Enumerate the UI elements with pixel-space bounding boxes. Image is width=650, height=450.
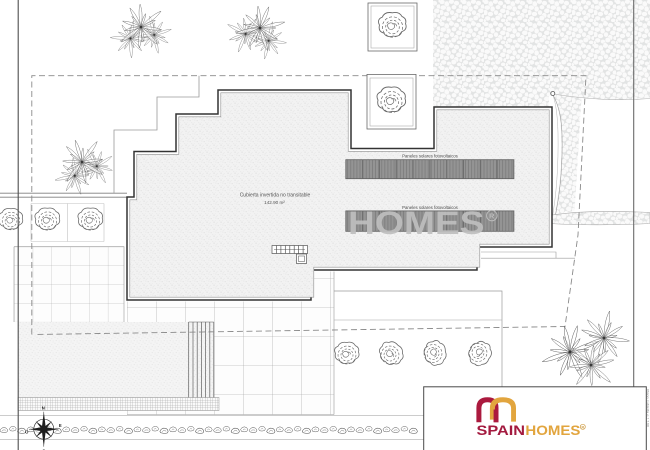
svg-text:142.90 m²: 142.90 m² xyxy=(264,200,285,205)
svg-text:R: R xyxy=(489,212,495,221)
svg-text:E: E xyxy=(59,423,62,428)
svg-text:Plano cubierta e.1:100: Plano cubierta e.1:100 xyxy=(646,389,650,427)
svg-text:SPAIN: SPAIN xyxy=(477,422,526,438)
svg-text:Cubierta invertida no transita: Cubierta invertida no transitable xyxy=(240,192,311,198)
svg-text:N: N xyxy=(42,406,45,411)
svg-text:HOMES: HOMES xyxy=(348,205,485,241)
svg-text:HOMES: HOMES xyxy=(525,422,580,438)
svg-text:R: R xyxy=(581,426,584,430)
svg-text:Paneles solares fotovoltaicos: Paneles solares fotovoltaicos xyxy=(402,153,458,158)
